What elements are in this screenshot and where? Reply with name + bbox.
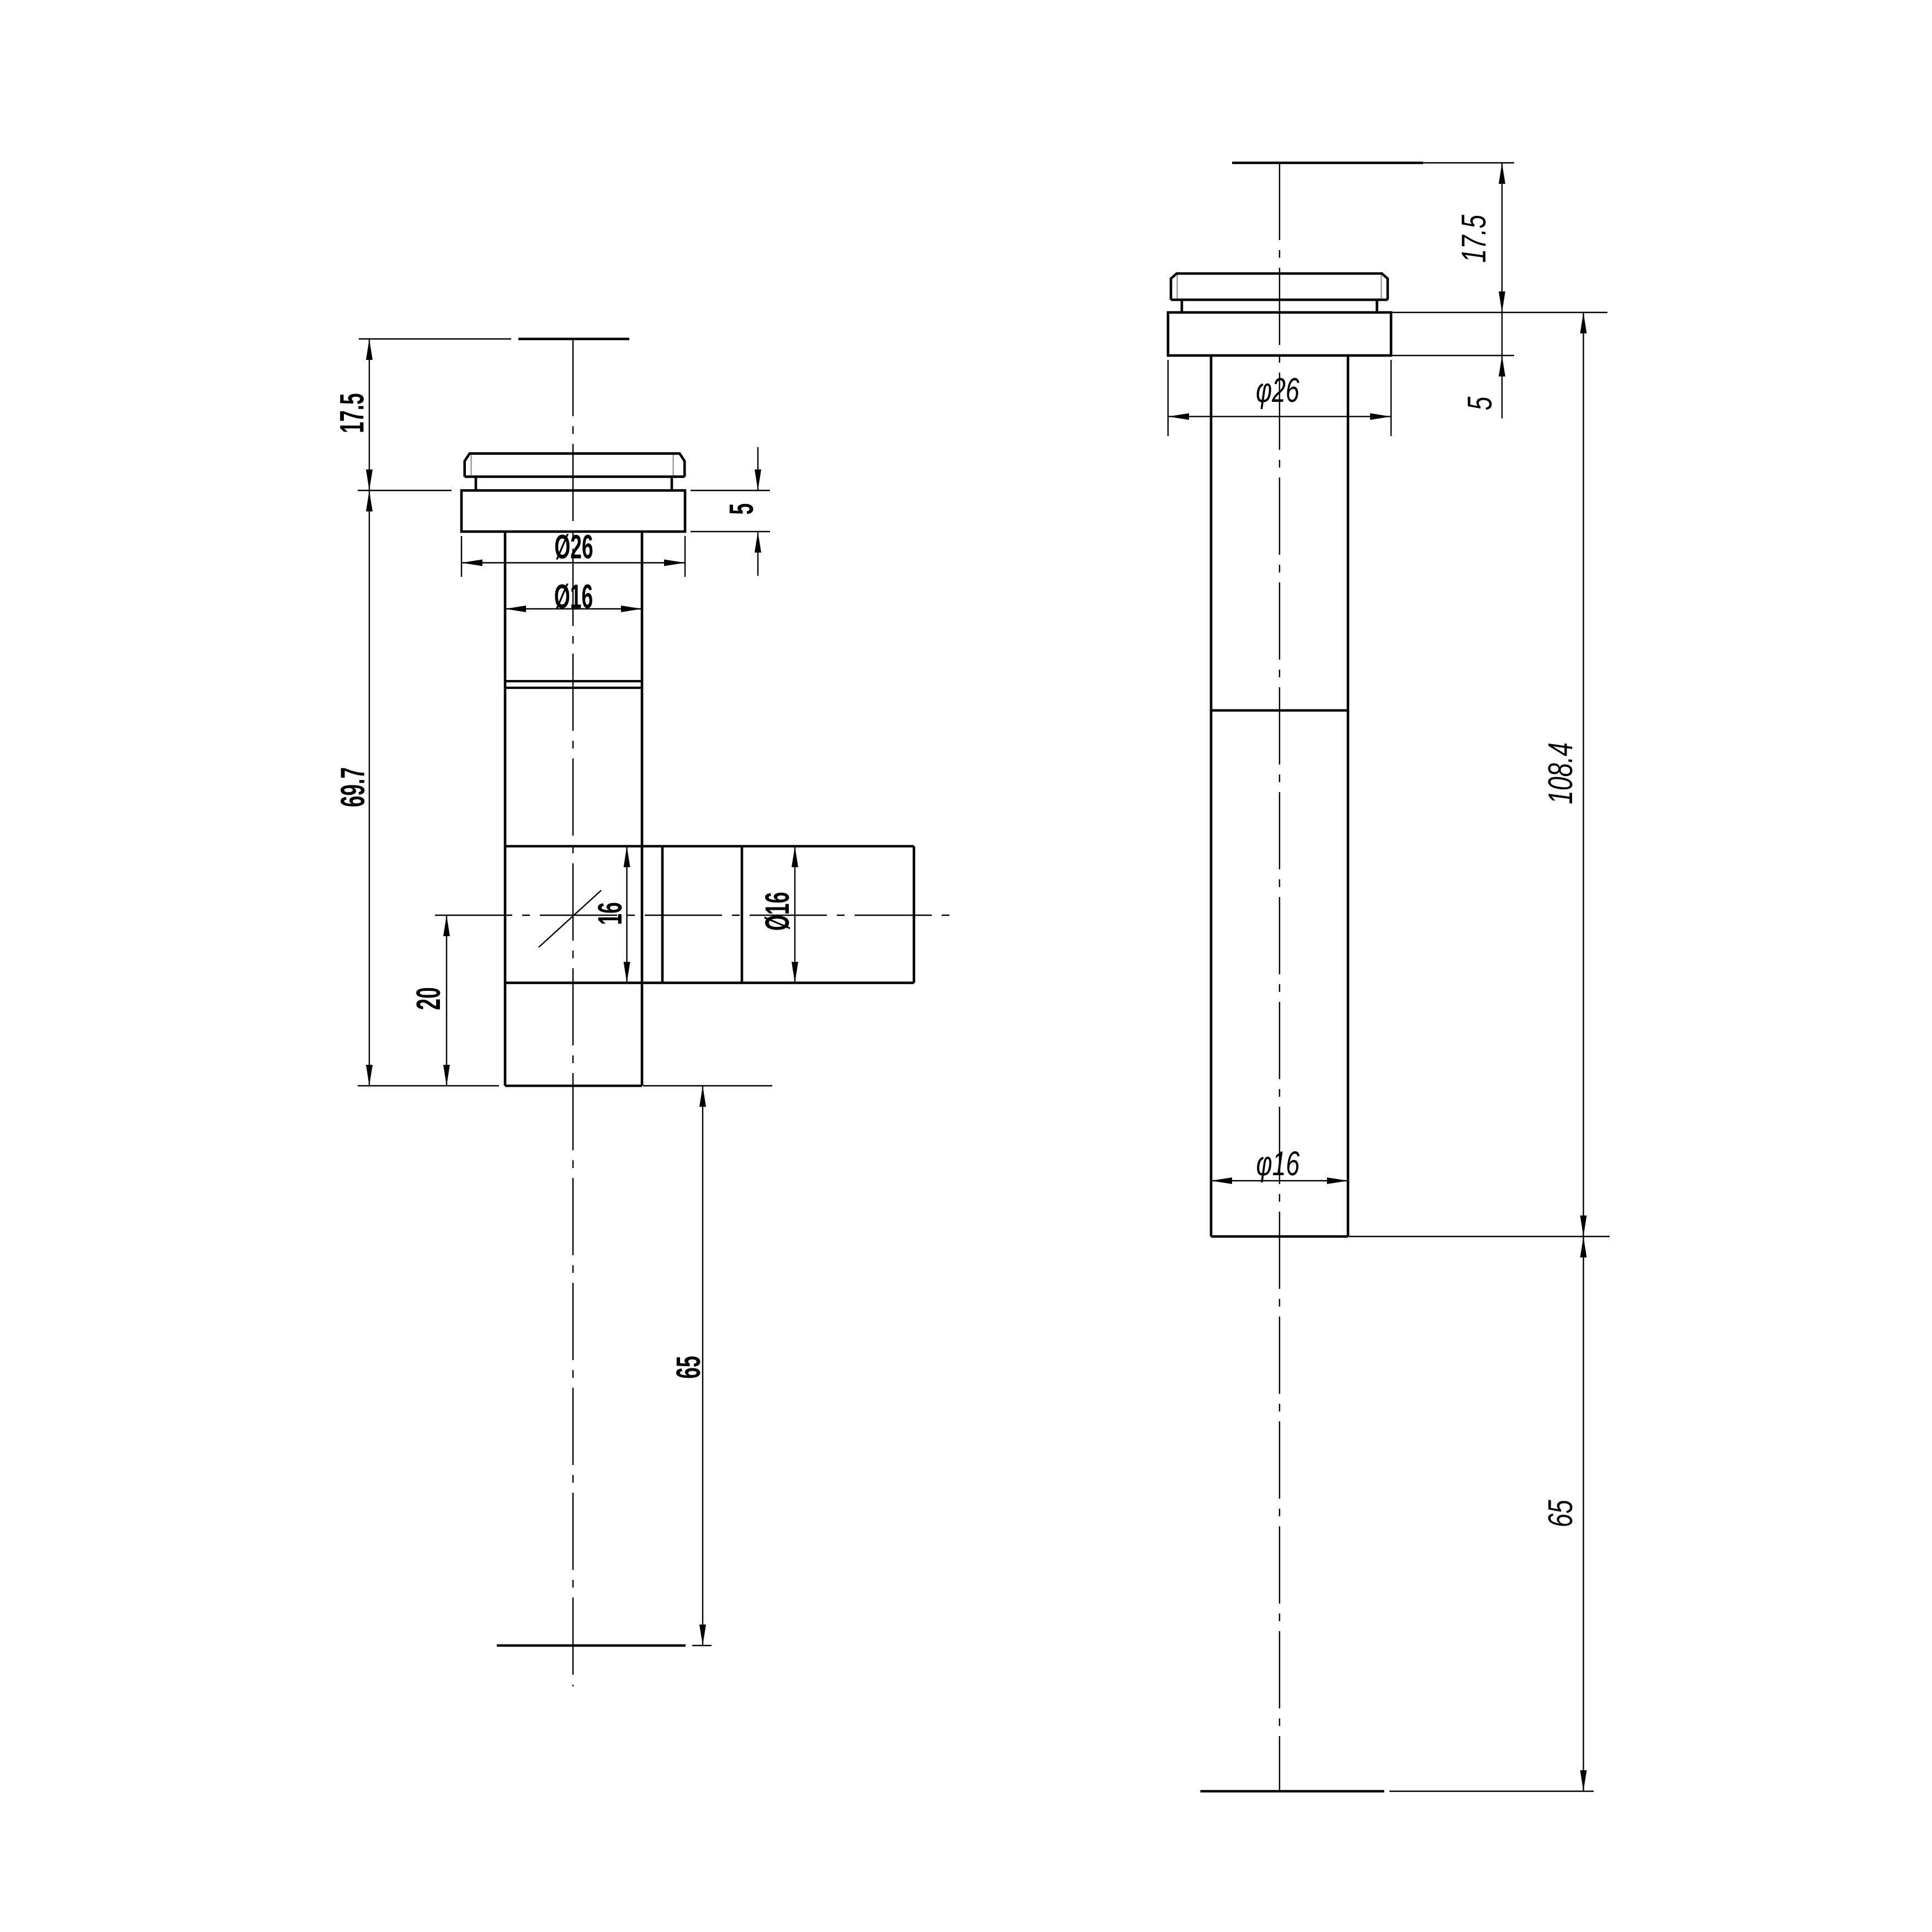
svg-text:69.7: 69.7 [333, 767, 371, 807]
svg-text:Ø16: Ø16 [554, 577, 593, 615]
svg-text:17.5: 17.5 [1455, 214, 1493, 263]
svg-text:5: 5 [722, 503, 760, 515]
svg-text:φ16: φ16 [1256, 1145, 1301, 1183]
svg-text:Ø16: Ø16 [758, 892, 796, 931]
svg-text:108.4: 108.4 [1542, 742, 1580, 804]
svg-text:Ø26: Ø26 [554, 528, 593, 566]
svg-text:φ26: φ26 [1256, 371, 1300, 410]
svg-text:5: 5 [1461, 396, 1499, 411]
svg-text:65: 65 [669, 1356, 707, 1378]
svg-text:20: 20 [409, 987, 447, 1010]
svg-text:65: 65 [1542, 1499, 1580, 1527]
svg-text:17.5: 17.5 [333, 393, 371, 433]
svg-text:16: 16 [591, 902, 629, 925]
